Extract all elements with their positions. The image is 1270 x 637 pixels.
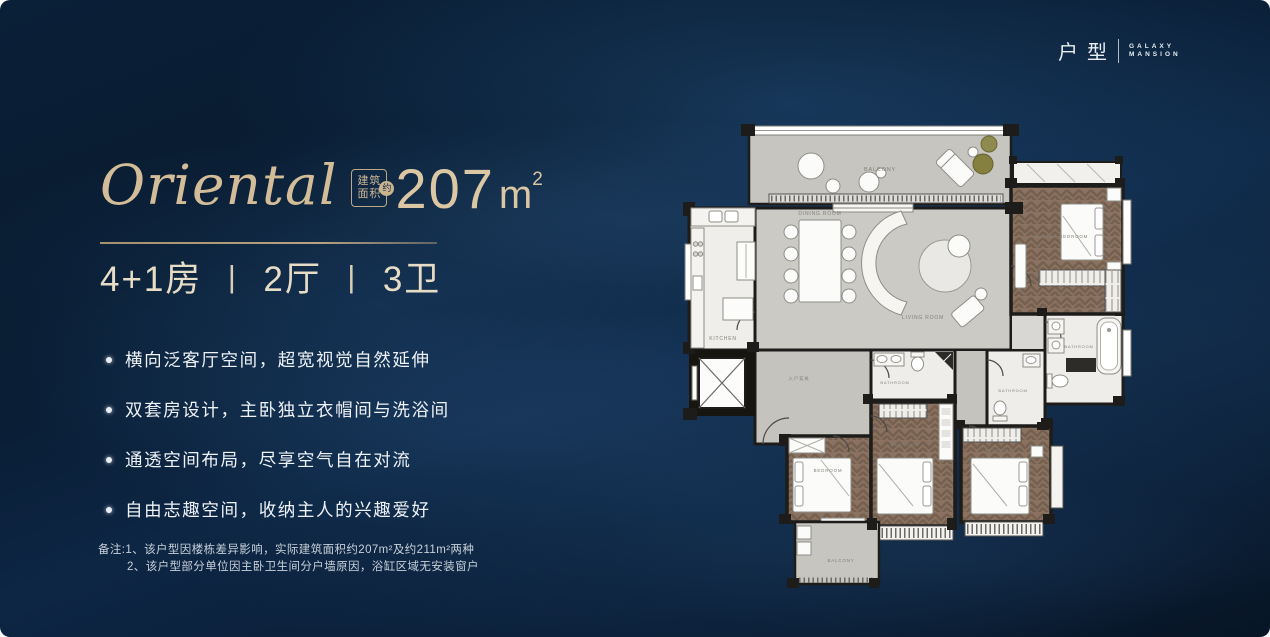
layout-specs: 4+1房丨2厅丨3卫: [100, 251, 441, 302]
label-bath2: BATHROOM: [998, 388, 1027, 393]
label-kitchen: KITCHEN: [709, 336, 737, 342]
list-item: 双套房设计，主卧独立衣帽间与洗浴间: [106, 397, 450, 422]
spec-baths: 3卫: [383, 260, 441, 299]
feature-text: 自由志趣空间，收纳主人的兴趣爱好: [125, 497, 431, 522]
footnotes: 备注:1、该户型因楼栋差异影响，实际建筑面积约207m²及约211m²两种 2、…: [98, 542, 479, 576]
bullet-dot-icon: [106, 407, 112, 413]
feature-text: 通透空间布局，尽享空气自在对流: [125, 447, 412, 472]
badge-line2: 面积: [357, 188, 381, 201]
area-value: 207 m 2: [395, 161, 542, 217]
logo-cn-text: 户型: [1058, 36, 1116, 65]
label-bedroom-mid: BEDROOM: [891, 442, 920, 447]
label-master-bedroom: MASTER BEDROOM: [1034, 234, 1088, 239]
floor-plan: BALCONY DINING ROOM LIVING ROOM KITCHEN …: [683, 116, 1135, 592]
label-bath1: BATHROOM: [880, 380, 909, 385]
area-superscript: 2: [532, 169, 543, 191]
room-master-vestibule: [1011, 314, 1045, 350]
label-balcony-top: BALCONY: [864, 167, 896, 173]
logo-divider: [1118, 39, 1119, 63]
area-badge: 建筑 面积 约: [351, 169, 387, 207]
label-dining: DINING ROOM: [798, 211, 841, 217]
spec-rooms: 4+1房: [100, 260, 202, 299]
label-balcony-bottom: BALCONY: [827, 558, 854, 563]
area-unit: m: [499, 175, 532, 215]
list-item: 自由志趣空间，收纳主人的兴趣爱好: [106, 497, 450, 522]
bullet-dot-icon: [106, 457, 112, 463]
footnote-line1: 备注:1、该户型因楼栋差异影响，实际建筑面积约207m²及约211m²两种: [98, 542, 479, 559]
spec-halls: 2厅: [263, 260, 321, 299]
title-divider: [100, 242, 437, 244]
list-item: 通透空间布局，尽享空气自在对流: [106, 447, 450, 472]
feature-text: 横向泛客厅空间，超宽视觉自然延伸: [125, 347, 431, 372]
label-foyer: 入户玄关: [788, 375, 809, 382]
brochure-page: 户型 GALAXY MANSION Oriental 建筑 面积 约 207 m…: [0, 0, 1270, 637]
label-bedroom-left: BEDROOM: [814, 468, 843, 473]
room-balcony-top: [749, 126, 1011, 204]
feature-text: 双套房设计，主卧独立衣帽间与洗浴间: [125, 397, 450, 422]
room-equipment-platform: [1013, 162, 1121, 184]
spec-separator: 丨: [216, 263, 249, 298]
elevator-shaft: [689, 350, 755, 416]
approx-circle: 约: [379, 181, 394, 196]
list-item: 横向泛客厅空间，超宽视觉自然延伸: [106, 347, 450, 372]
unit-name: Oriental: [100, 158, 337, 213]
bullet-dot-icon: [106, 507, 112, 513]
area-number: 207: [395, 161, 494, 217]
label-bedroom-right: BEDROOM: [985, 448, 1014, 453]
label-living: LIVING ROOM: [902, 315, 944, 321]
logo-en-line1: GALAXY: [1129, 43, 1181, 52]
feature-list: 横向泛客厅空间，超宽视觉自然延伸 双套房设计，主卧独立衣帽间与洗浴间 通透空间布…: [106, 347, 450, 547]
bullet-dot-icon: [106, 357, 112, 363]
footnote-line2: 2、该户型部分单位因主卧卫生间分户墙原因，浴缸区域无安装窗户: [98, 559, 479, 576]
logo-en-line2: MANSION: [1129, 51, 1181, 60]
brand-logo: 户型 GALAXY MANSION: [1058, 36, 1181, 65]
title-row: Oriental 建筑 面积 约 207 m 2: [100, 158, 543, 213]
badge-line1: 建筑: [357, 175, 381, 188]
spec-separator: 丨: [336, 263, 369, 298]
label-master-bath: BATHROOM: [1064, 344, 1093, 349]
